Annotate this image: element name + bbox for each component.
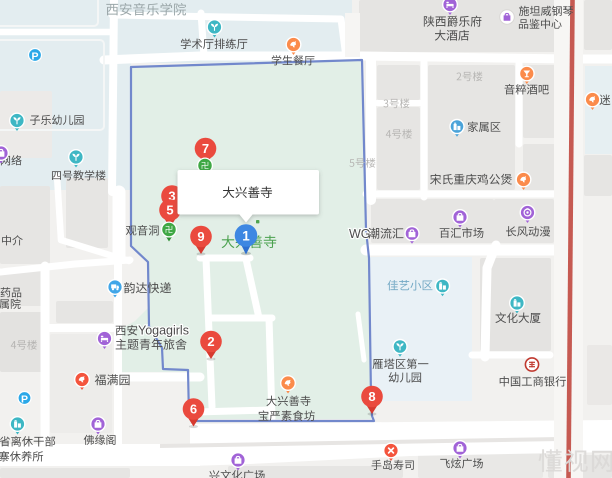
svg-text:2: 2 (207, 334, 214, 349)
svg-text:6: 6 (190, 402, 197, 417)
svg-text:9: 9 (197, 229, 204, 244)
svg-text:P: P (21, 393, 28, 405)
svg-text:P: P (31, 50, 38, 62)
svg-text:8: 8 (368, 389, 375, 404)
svg-text:7: 7 (202, 141, 209, 156)
svg-text:WG: WG (349, 227, 371, 241)
svg-text:Yogagirls: Yogagirls (138, 324, 189, 338)
svg-text:1: 1 (242, 228, 250, 243)
svg-text:5: 5 (166, 203, 173, 218)
